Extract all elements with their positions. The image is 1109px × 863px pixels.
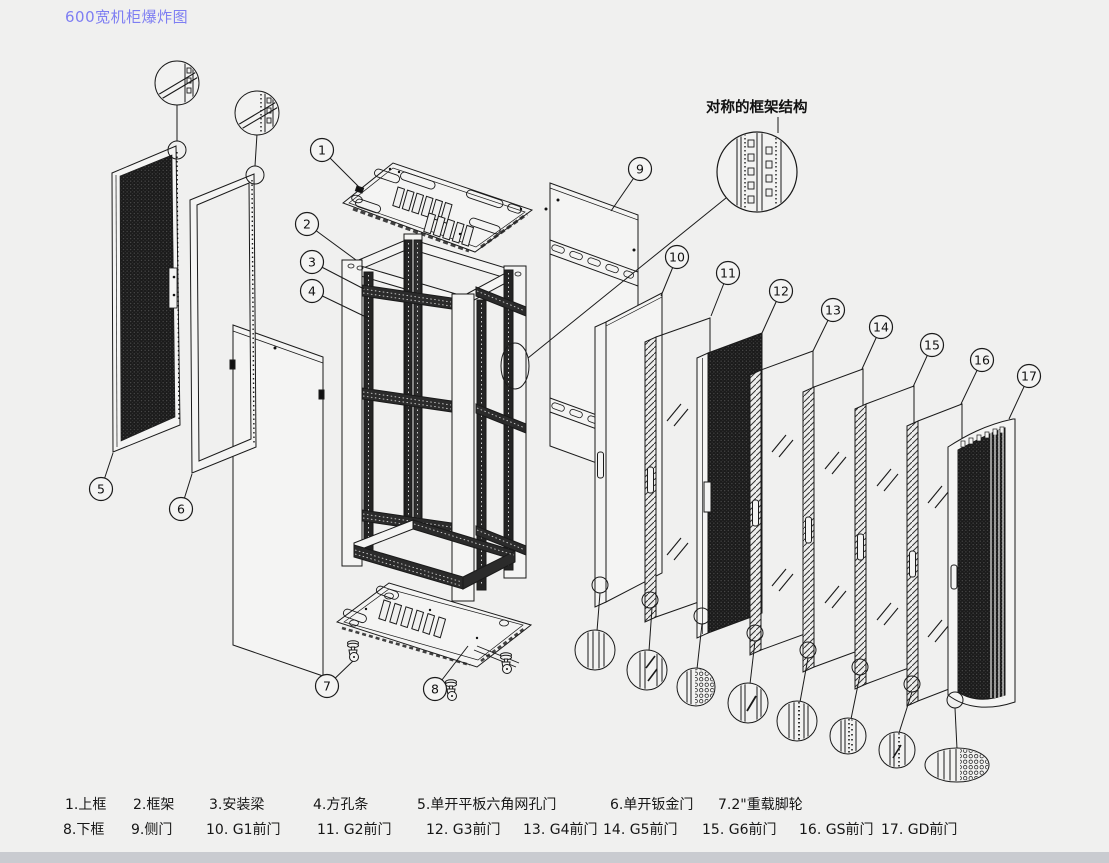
legend-item-16: 16. GS前门 (799, 819, 873, 839)
legend-item-3: 3.安装梁 (209, 794, 264, 814)
callout-13: 13 (813, 299, 845, 352)
part-frame (342, 234, 529, 601)
caster (501, 653, 512, 674)
svg-text:2: 2 (303, 217, 311, 232)
callout-15: 15 (913, 334, 944, 388)
page-title: 600宽机柜爆炸图 (65, 6, 188, 27)
callout-1: 1 (311, 139, 363, 191)
legend-item-13: 13. G4前门 (523, 819, 597, 839)
legend-item-17: 17. GD前门 (881, 819, 957, 839)
callout-6: 6 (170, 474, 193, 521)
door-gd (947, 419, 1015, 708)
svg-text:3: 3 (308, 255, 316, 270)
callout-16: 16 (961, 349, 994, 405)
legend-item-6: 6.单开钣金门 (610, 794, 693, 814)
svg-text:16: 16 (974, 353, 990, 368)
callout-17: 17 (1009, 365, 1041, 420)
callout-11: 11 (711, 262, 740, 317)
part-mesh-door (112, 141, 186, 452)
svg-text:7: 7 (323, 679, 331, 694)
svg-text:10: 10 (669, 250, 685, 265)
svg-text:11: 11 (720, 266, 736, 281)
svg-text:8: 8 (431, 682, 439, 697)
canvas: 1234567891011121314151617 600宽机柜爆炸图 对称的框… (0, 0, 1109, 863)
legend-row-1: 1.上框2.框架3.安装梁4.方孔条5.单开平板六角网孔门6.单开钣金门7.2"… (0, 794, 1109, 812)
callout-14: 14 (862, 316, 893, 370)
svg-text:1: 1 (318, 143, 326, 158)
svg-text:14: 14 (873, 320, 889, 335)
svg-text:5: 5 (97, 482, 105, 497)
callout-5: 5 (90, 453, 114, 501)
door-g6 (852, 386, 914, 689)
part-metal-door-panel (230, 325, 324, 676)
svg-text:12: 12 (773, 284, 789, 299)
legend-item-4: 4.方孔条 (313, 794, 368, 814)
part-door-frame (190, 166, 264, 473)
legend-item-2: 2.框架 (133, 794, 174, 814)
detail-marker-frame-corner (246, 166, 264, 184)
legend-item-10: 10. G1前门 (206, 819, 280, 839)
part-front-doors (592, 293, 962, 706)
svg-text:15: 15 (924, 338, 940, 353)
callout-12: 12 (762, 280, 793, 334)
caster (348, 641, 359, 662)
legend-item-15: 15. G6前门 (702, 819, 776, 839)
legend-item-1: 1.上框 (65, 794, 106, 814)
frame-structure-label: 对称的框架结构 (706, 96, 808, 117)
legend-row-2: 8.下框9.侧门10. G1前门11. G2前门12. G3前门13. G4前门… (0, 819, 1109, 837)
legend-item-14: 14. G5前门 (603, 819, 677, 839)
callout-10: 10 (661, 246, 689, 297)
bottom-band (0, 852, 1109, 863)
legend-item-5: 5.单开平板六角网孔门 (417, 794, 556, 814)
legend-item-12: 12. G3前门 (426, 819, 500, 839)
callout-9: 9 (611, 158, 652, 212)
legend-item-8: 8.下框 (63, 819, 104, 839)
svg-text:4: 4 (308, 284, 316, 299)
caster (446, 680, 457, 701)
mounting-beams (362, 285, 526, 555)
svg-text:9: 9 (636, 162, 644, 177)
svg-text:17: 17 (1021, 369, 1037, 384)
legend-item-9: 9.侧门 (131, 819, 172, 839)
legend-item-7: 7.2"重载脚轮 (718, 794, 803, 814)
door-g5 (800, 369, 863, 672)
edge-detail-circles (575, 593, 989, 784)
svg-text:6: 6 (177, 502, 185, 517)
exploded-diagram: 1234567891011121314151617 (0, 0, 1109, 863)
part-top-cover (343, 163, 532, 252)
legend-item-11: 11. G2前门 (317, 819, 391, 839)
svg-text:13: 13 (825, 303, 841, 318)
